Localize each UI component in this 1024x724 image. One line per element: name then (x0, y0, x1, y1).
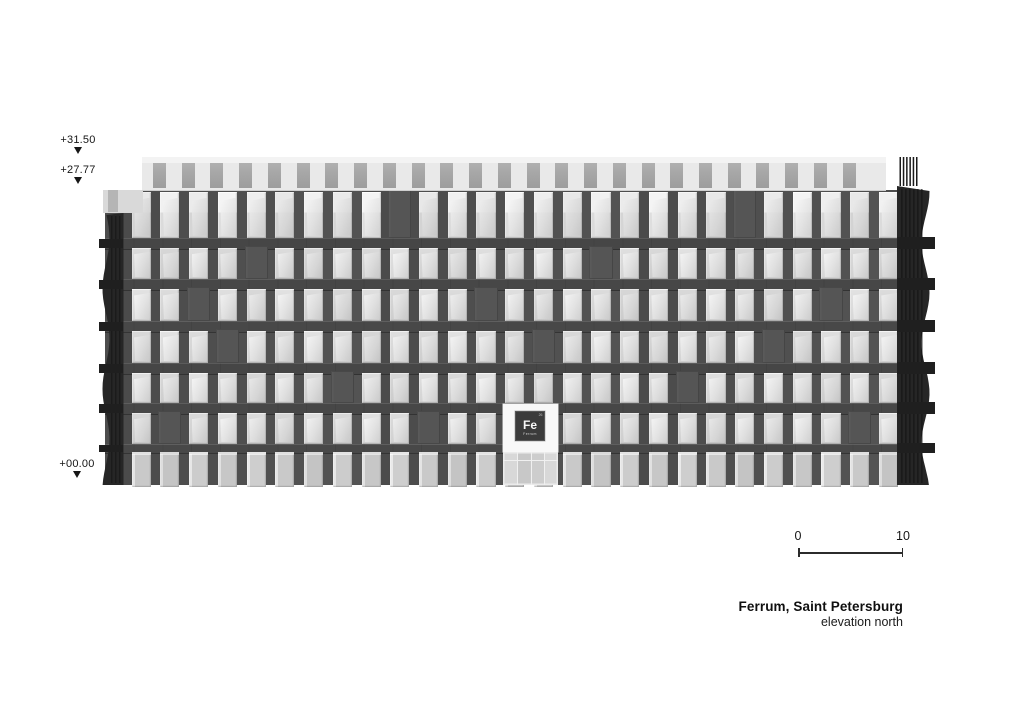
facade-window (678, 289, 697, 321)
scale-bar-tick (798, 548, 800, 557)
parapet-slot (354, 163, 367, 188)
facade-window (419, 289, 438, 321)
parapet-slot (814, 163, 827, 188)
facade-window (362, 248, 381, 279)
weave-pier (848, 411, 871, 444)
facade-window (764, 373, 783, 403)
facade-window (706, 452, 725, 487)
facade-window (362, 331, 381, 363)
edge-fin-right (897, 186, 930, 485)
facade-window (218, 452, 237, 487)
facade-window (132, 452, 151, 487)
facade-column (697, 190, 707, 485)
facade-window (218, 192, 237, 238)
facade-window (850, 373, 869, 403)
facade-window (247, 373, 266, 403)
facade-window (247, 452, 266, 487)
parapet-slot (642, 163, 655, 188)
scale-label-end: 10 (896, 529, 910, 543)
facade-window (764, 192, 783, 238)
facade-window (505, 331, 524, 363)
weave-pier (388, 190, 411, 238)
facade-window (189, 331, 208, 363)
facade-window (678, 452, 697, 487)
logo-name: Ferrum (523, 432, 537, 436)
facade-window (706, 413, 725, 444)
weave-pier (158, 411, 181, 444)
facade-window (160, 331, 179, 363)
scale-bar-tick (902, 548, 904, 557)
facade-window (706, 331, 725, 363)
parapet-slot (239, 163, 252, 188)
scale-bar (798, 548, 903, 558)
facade-column (294, 190, 304, 485)
parapet-slot (469, 163, 482, 188)
parapet-slot (153, 163, 166, 188)
facade-window (591, 373, 610, 403)
facade-window (476, 452, 495, 487)
facade-window (793, 289, 812, 321)
facade-window (591, 289, 610, 321)
facade-window (534, 192, 553, 238)
fin-stripe (921, 189, 923, 483)
entrance-mullion (544, 452, 545, 485)
facade-window (218, 413, 237, 444)
parapet-slot (325, 163, 338, 188)
facade-window (476, 192, 495, 238)
fin-tab-right (897, 443, 935, 453)
entrance-mullion (531, 452, 532, 485)
fin-tab-right (897, 237, 935, 249)
drawing-canvas: +31.50 +27.77 +00.00 26 Fe Ferrum 0 10 F… (0, 0, 1024, 724)
facade-window (879, 331, 898, 363)
facade-window (649, 331, 668, 363)
entrance-transom (503, 460, 558, 461)
facade-window (821, 452, 840, 487)
facade-window (189, 413, 208, 444)
facade-window (247, 289, 266, 321)
parapet-slot (412, 163, 425, 188)
parapet-slot (210, 163, 223, 188)
facade-window (362, 413, 381, 444)
facade-column (812, 190, 822, 485)
fin-tab-right (897, 320, 935, 332)
facade-window (850, 289, 869, 321)
fin-stripe (901, 189, 903, 483)
facade-window (678, 331, 697, 363)
facade-window (275, 289, 294, 321)
logo-atomic-number: 26 (539, 413, 543, 417)
facade-window (850, 248, 869, 279)
facade-window (591, 413, 610, 444)
facade-window (620, 289, 639, 321)
fin-stripe (909, 189, 911, 483)
facade-window (821, 413, 840, 444)
parapet-slot (843, 163, 856, 188)
facade-window (678, 248, 697, 279)
parapet-slot (584, 163, 597, 188)
facade-window (620, 452, 639, 487)
parapet-slot (670, 163, 683, 188)
parapet-slot (297, 163, 310, 188)
facade-window (362, 192, 381, 238)
facade-window (649, 452, 668, 487)
weave-pier (532, 329, 555, 363)
facade-window (189, 248, 208, 279)
facade-window (390, 248, 409, 279)
facade-window (333, 413, 352, 444)
facade-window (649, 373, 668, 403)
facade-window (764, 413, 783, 444)
facade-window (160, 452, 179, 487)
facade-window (275, 331, 294, 363)
facade-window (850, 452, 869, 487)
facade-window (160, 248, 179, 279)
fin-tab-right (897, 402, 935, 414)
facade-window (304, 331, 323, 363)
facade-window (850, 192, 869, 238)
facade-window (448, 452, 467, 487)
fin-top-line (906, 157, 908, 186)
facade-window (735, 452, 754, 487)
facade-window (735, 289, 754, 321)
facade-window (333, 192, 352, 238)
parapet-slot (555, 163, 568, 188)
facade-window (563, 452, 582, 487)
facade-window (735, 331, 754, 363)
facade-window (247, 331, 266, 363)
facade-window (821, 248, 840, 279)
facade-window (821, 192, 840, 238)
weave-pier (819, 287, 842, 321)
facade-window (476, 331, 495, 363)
facade-column (611, 190, 621, 485)
parapet-slot (699, 163, 712, 188)
facade-window (563, 331, 582, 363)
weave-pier (474, 287, 497, 321)
facade-window (591, 331, 610, 363)
facade-window (706, 373, 725, 403)
fin-top-line (903, 157, 905, 186)
facade-window (505, 373, 524, 403)
facade-window (706, 248, 725, 279)
facade-window (448, 289, 467, 321)
facade-window (649, 289, 668, 321)
facade-window (649, 248, 668, 279)
facade-window (476, 373, 495, 403)
facade-window (275, 192, 294, 238)
fin-stripe (917, 189, 919, 483)
facade-window (620, 331, 639, 363)
weave-pier (187, 287, 210, 321)
facade-window (563, 413, 582, 444)
facade-window (764, 452, 783, 487)
facade-window (764, 289, 783, 321)
facade-window (620, 373, 639, 403)
facade-column (352, 190, 362, 485)
logo-symbol: Fe (523, 419, 537, 431)
facade-window (591, 452, 610, 487)
fin-top-line (913, 157, 915, 186)
facade-column (323, 190, 333, 485)
facade-column (266, 190, 276, 485)
parapet-slot (785, 163, 798, 188)
facade-window (390, 452, 409, 487)
facade-window (706, 289, 725, 321)
facade-window (448, 373, 467, 403)
facade-window (419, 373, 438, 403)
facade-window (419, 192, 438, 238)
entrance-glazing (503, 452, 558, 485)
facade-window (678, 413, 697, 444)
facade-column (122, 190, 132, 485)
facade-window (620, 192, 639, 238)
facade-window (793, 192, 812, 238)
facade-window (362, 289, 381, 321)
facade-window (333, 452, 352, 487)
parapet-slot (383, 163, 396, 188)
facade-window (275, 413, 294, 444)
facade-window (390, 413, 409, 444)
facade-window (304, 192, 323, 238)
facade-window (591, 192, 610, 238)
facade-column (639, 190, 649, 485)
weave-pier (589, 246, 612, 279)
parapet-slot (268, 163, 281, 188)
facade-window (505, 248, 524, 279)
facade-window (620, 248, 639, 279)
facade-window (304, 452, 323, 487)
parapet-slot (613, 163, 626, 188)
facade-window (793, 373, 812, 403)
facade-window (821, 331, 840, 363)
facade-window (160, 192, 179, 238)
facade-window (275, 452, 294, 487)
facade-window (476, 413, 495, 444)
facade-window (505, 192, 524, 238)
facade-window (764, 248, 783, 279)
weave-pier (676, 371, 699, 403)
facade-window (563, 192, 582, 238)
facade-window (333, 331, 352, 363)
facade-window (390, 373, 409, 403)
facade-window (793, 413, 812, 444)
facade-window (563, 289, 582, 321)
facade-window (850, 331, 869, 363)
facade-window (448, 192, 467, 238)
facade-window (793, 248, 812, 279)
facade-window (534, 289, 553, 321)
facade-window (132, 413, 151, 444)
parapet-slot (756, 163, 769, 188)
facade-window (534, 248, 553, 279)
facade-window (132, 248, 151, 279)
facade-window (160, 373, 179, 403)
scale-bar-line (798, 552, 903, 554)
weave-pier (762, 329, 785, 363)
facade-window (304, 248, 323, 279)
fin-top-line (900, 157, 902, 186)
facade-window (132, 331, 151, 363)
weave-pier (216, 329, 239, 363)
facade-window (793, 331, 812, 363)
facade-window (132, 373, 151, 403)
facade-window (362, 373, 381, 403)
drawing-subtitle: elevation north (739, 615, 903, 629)
facade-window (247, 413, 266, 444)
ferrum-logo: 26 Fe Ferrum (515, 411, 545, 441)
parapet-slot (440, 163, 453, 188)
fin-tab-right (897, 362, 935, 374)
facade-window (563, 248, 582, 279)
facade-window (448, 413, 467, 444)
facade-window (879, 373, 898, 403)
facade-window (218, 289, 237, 321)
facade-window (534, 373, 553, 403)
fin-stripe (905, 189, 907, 483)
facade-window (821, 373, 840, 403)
drawing-title: Ferrum, Saint Petersburg (739, 599, 903, 614)
fin-tab-right (897, 278, 935, 290)
parapet-slot (527, 163, 540, 188)
parapet-slot (182, 163, 195, 188)
corner-slot (108, 190, 118, 212)
facade-window (735, 413, 754, 444)
facade-window (275, 248, 294, 279)
facade-window (505, 289, 524, 321)
facade-window (218, 248, 237, 279)
facade-window (189, 373, 208, 403)
facade-window (448, 331, 467, 363)
facade-window (333, 289, 352, 321)
facade-window (304, 289, 323, 321)
facade-window (563, 373, 582, 403)
facade-window (160, 289, 179, 321)
title-block: Ferrum, Saint Petersburg elevation north (739, 599, 903, 629)
facade-window (304, 373, 323, 403)
weave-pier (733, 190, 756, 238)
facade-window (879, 413, 898, 444)
facade-window (333, 248, 352, 279)
fin-top-line (916, 157, 918, 186)
facade-column (582, 190, 592, 485)
facade-window (879, 289, 898, 321)
facade-window (649, 413, 668, 444)
facade-window (879, 192, 898, 238)
facade-window (476, 248, 495, 279)
fin-stripe (913, 189, 915, 483)
facade-window (735, 248, 754, 279)
parapet (142, 157, 886, 191)
facade-window (132, 289, 151, 321)
scale-label-start: 0 (795, 529, 802, 543)
facade-window (419, 452, 438, 487)
facade-column (467, 190, 477, 485)
facade-window (678, 192, 697, 238)
facade-window (390, 289, 409, 321)
parapet-slot (498, 163, 511, 188)
facade-window (448, 248, 467, 279)
facade-window (189, 452, 208, 487)
facade-window (649, 192, 668, 238)
facade-window (189, 192, 208, 238)
weave-pier (245, 246, 268, 279)
entrance-mullion (517, 452, 518, 485)
facade-window (419, 331, 438, 363)
facade-window (706, 192, 725, 238)
parapet-slot (728, 163, 741, 188)
facade-window (390, 331, 409, 363)
facade-window (304, 413, 323, 444)
facade-window (275, 373, 294, 403)
facade-window (879, 248, 898, 279)
facade-window (247, 192, 266, 238)
weave-pier (331, 371, 354, 403)
fin-top-line (909, 157, 911, 186)
weave-pier (417, 411, 440, 444)
facade-window (793, 452, 812, 487)
facade-column (668, 190, 678, 485)
facade-window (620, 413, 639, 444)
facade-window (419, 248, 438, 279)
facade-window (362, 452, 381, 487)
facade-window (879, 452, 898, 487)
facade-window (735, 373, 754, 403)
facade-window (218, 373, 237, 403)
